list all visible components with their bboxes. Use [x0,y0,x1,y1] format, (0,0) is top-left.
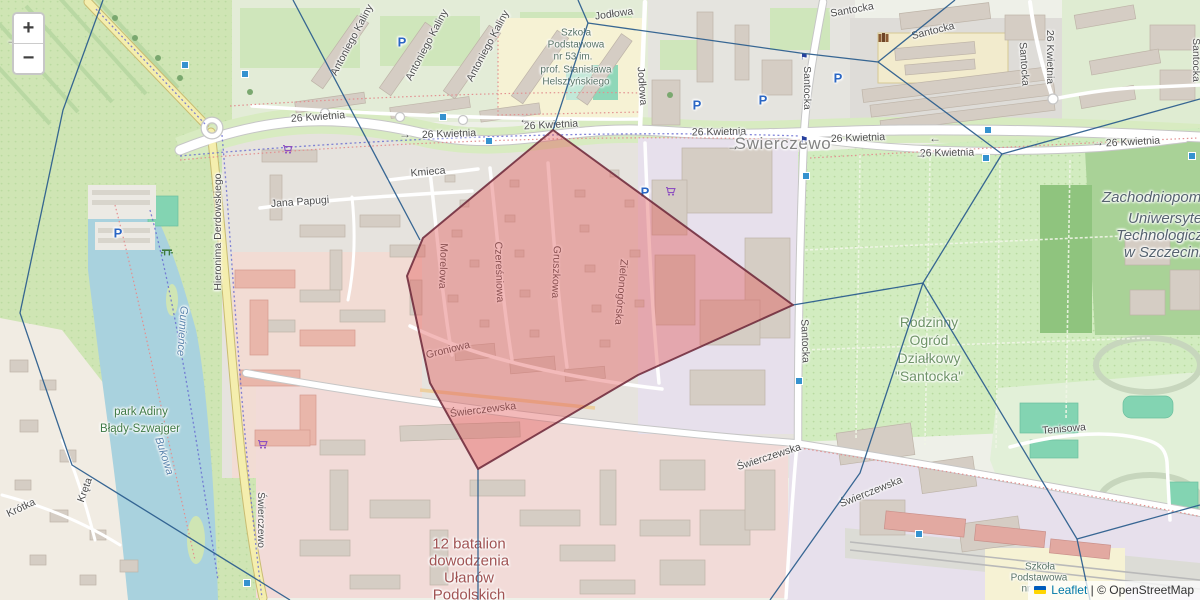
attribution-bar: Leaflet | © OpenStreetMap [1028,581,1200,600]
leaflet-link[interactable]: Leaflet [1051,583,1087,597]
library-icon [879,33,889,42]
zoom-control: + − [12,12,45,75]
map-canvas[interactable]: 26 Kwietnia 26 Kwietnia 26 Kwietnia 26 K… [0,0,1200,600]
osm-attribution[interactable]: © OpenStreetMap [1097,583,1194,597]
ukraine-flag-icon [1034,586,1046,594]
zoom-in-button[interactable]: + [14,14,43,44]
attribution-separator: | [1091,583,1094,597]
zoom-out-button[interactable]: − [14,44,43,73]
